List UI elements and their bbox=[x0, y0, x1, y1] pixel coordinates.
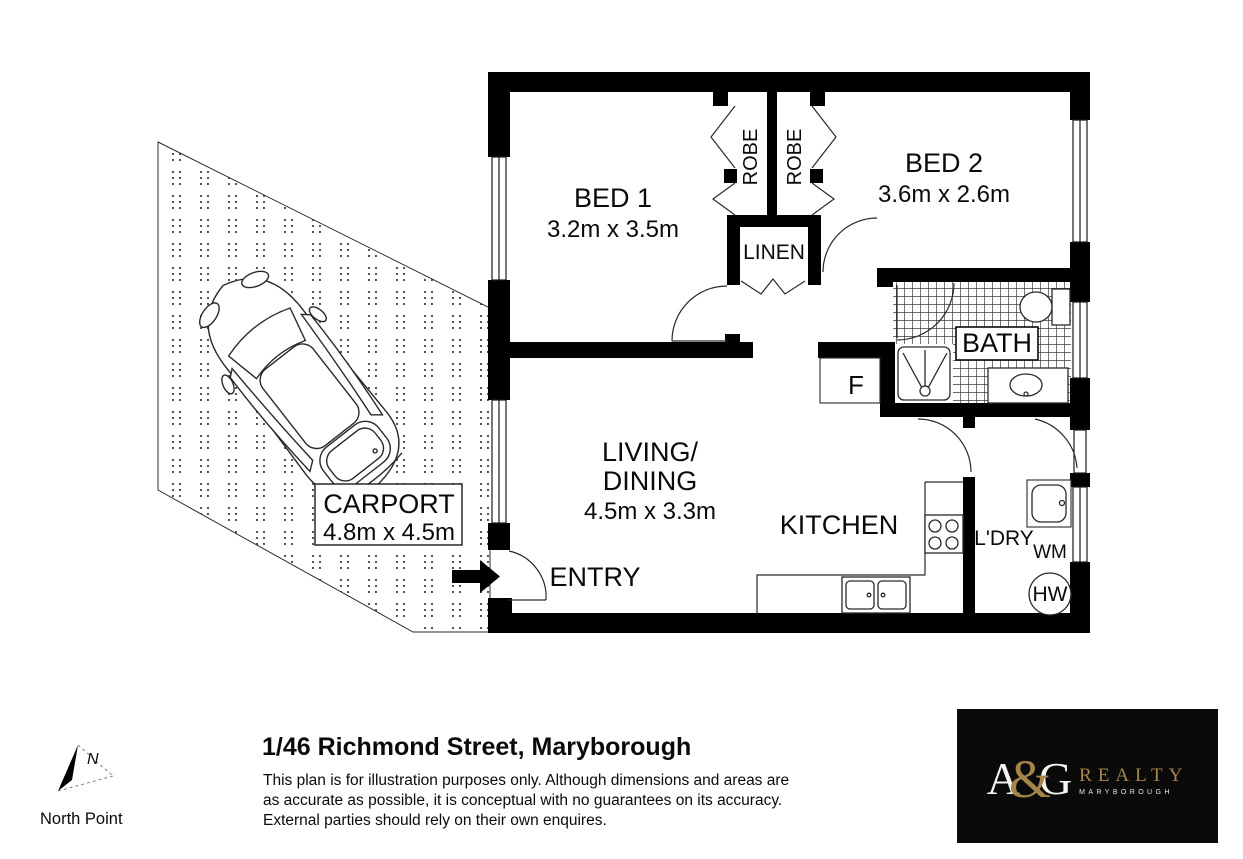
wall bbox=[488, 598, 512, 633]
bed1-dims: 3.2m x 3.5m bbox=[547, 216, 679, 243]
floorplan-page: CARPORT 4.8m x 4.5m bbox=[0, 0, 1243, 859]
robe2-bifold-door bbox=[812, 106, 836, 215]
wall bbox=[740, 215, 808, 227]
agency-logo-lockup: A & G REALTY MARYBOROUGH bbox=[987, 749, 1189, 803]
washing-machine-label: WM bbox=[1033, 542, 1067, 563]
wall bbox=[488, 72, 510, 157]
living-label-2: DINING bbox=[603, 466, 698, 496]
window bbox=[489, 157, 509, 280]
disclaimer-line: External parties should rely on their ow… bbox=[263, 811, 789, 831]
linen-label: LINEN bbox=[743, 241, 805, 264]
disclaimer-line: as accurate as possible, it is conceptua… bbox=[263, 791, 789, 811]
window bbox=[1071, 302, 1091, 378]
living-dims: 4.5m x 3.3m bbox=[584, 498, 716, 525]
agency-logo-monogram: A & G bbox=[987, 749, 1072, 803]
entry-label: ENTRY bbox=[549, 562, 640, 592]
wall bbox=[727, 215, 740, 285]
shower bbox=[895, 344, 953, 403]
wall bbox=[488, 72, 1090, 92]
wall bbox=[713, 92, 728, 106]
wall bbox=[1070, 378, 1090, 430]
north-point-label: North Point bbox=[40, 810, 123, 829]
wall bbox=[724, 169, 737, 183]
wall bbox=[810, 169, 823, 183]
door-bed1 bbox=[672, 286, 727, 341]
property-address-title: 1/46 Richmond Street, Maryborough bbox=[262, 733, 691, 762]
vanity-basin bbox=[988, 368, 1068, 403]
wall bbox=[488, 280, 510, 400]
wall bbox=[963, 417, 975, 428]
logo-location-text: MARYBOROUGH bbox=[1079, 789, 1188, 796]
robe1-label: ROBE bbox=[740, 129, 762, 186]
wall bbox=[1070, 242, 1090, 302]
window bbox=[489, 400, 509, 523]
wall bbox=[877, 282, 893, 287]
door-bed2 bbox=[823, 218, 877, 272]
door-entry bbox=[508, 551, 546, 600]
wall bbox=[1070, 562, 1090, 633]
wall bbox=[877, 268, 1072, 282]
robe2-label: ROBE bbox=[784, 129, 806, 186]
living-label-1: LIVING/ bbox=[602, 437, 699, 467]
laundry-tub bbox=[1027, 480, 1071, 527]
kitchen-sink bbox=[842, 577, 910, 613]
wall bbox=[808, 215, 821, 285]
carport-dims: 4.8m x 4.5m bbox=[323, 519, 455, 546]
window bbox=[1071, 487, 1091, 562]
north-letter: N bbox=[87, 751, 99, 768]
wall bbox=[1070, 473, 1090, 487]
wall bbox=[488, 342, 753, 358]
kitchen-label: KITCHEN bbox=[780, 510, 899, 540]
toilet bbox=[1020, 289, 1070, 325]
carport-label: CARPORT bbox=[323, 489, 455, 519]
bed1-label: BED 1 bbox=[574, 183, 652, 213]
robe1-bifold-door bbox=[711, 106, 735, 215]
stove bbox=[925, 515, 963, 553]
laundry-door-leaf bbox=[1074, 430, 1086, 473]
wall bbox=[810, 92, 825, 106]
bed2-dims: 3.6m x 2.6m bbox=[878, 181, 1010, 208]
linen-bifold-door bbox=[741, 279, 805, 294]
agency-logo-wordmark: REALTY MARYBOROUGH bbox=[1079, 756, 1188, 796]
window bbox=[1071, 120, 1091, 242]
agency-logo: A & G REALTY MARYBOROUGH bbox=[957, 709, 1218, 843]
wall bbox=[725, 334, 740, 342]
wall bbox=[488, 523, 510, 550]
disclaimer-line: This plan is for illustration purposes o… bbox=[263, 771, 789, 791]
hot-water-label: HW bbox=[1033, 583, 1068, 606]
logo-ampersand: & bbox=[1009, 752, 1051, 806]
disclaimer-text: This plan is for illustration purposes o… bbox=[263, 771, 789, 831]
wall bbox=[767, 92, 777, 215]
wall bbox=[488, 613, 1090, 633]
carport-area: CARPORT 4.8m x 4.5m bbox=[158, 142, 490, 632]
logo-realty-text: REALTY bbox=[1079, 766, 1188, 785]
north-point-icon: N bbox=[25, 712, 135, 812]
wall bbox=[880, 403, 1072, 417]
bath-label: BATH bbox=[962, 328, 1032, 358]
wall bbox=[1070, 72, 1090, 120]
fridge-label: F bbox=[848, 370, 864, 400]
laundry-label: L'DRY bbox=[974, 527, 1034, 550]
bed2-label: BED 2 bbox=[905, 148, 983, 178]
